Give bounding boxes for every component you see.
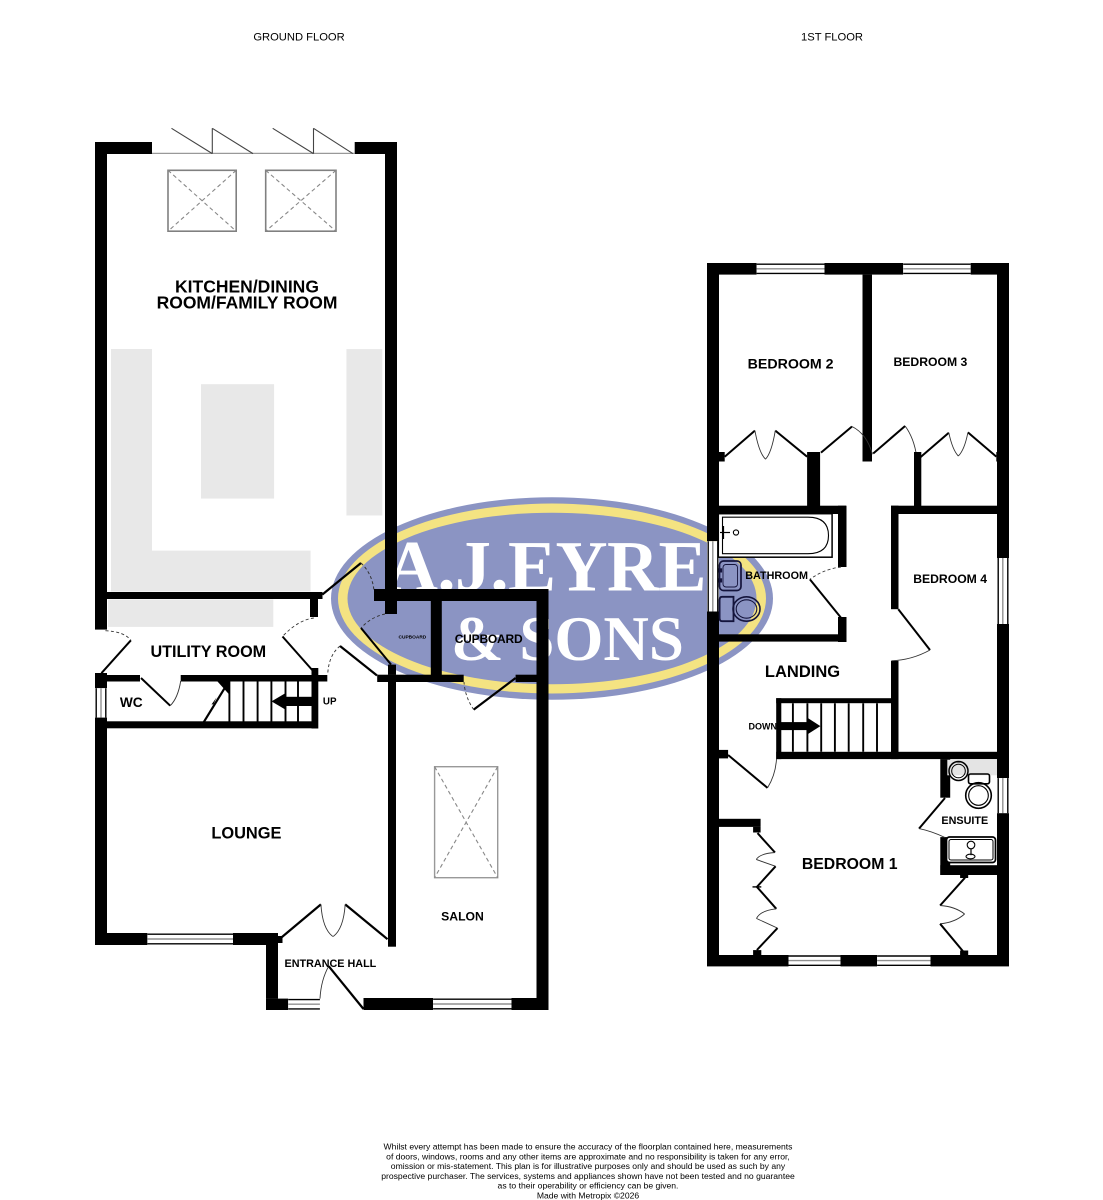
svg-text:omission or mis-statement. Thi: omission or mis-statement. This plan is … [391, 1161, 786, 1171]
svg-text:LANDING: LANDING [765, 663, 840, 681]
svg-text:UTILITY ROOM: UTILITY ROOM [150, 643, 266, 661]
svg-text:Made with Metropix ©2026: Made with Metropix ©2026 [537, 1191, 640, 1200]
svg-text:LOUNGE: LOUNGE [211, 824, 281, 842]
svg-text:WC: WC [120, 695, 143, 710]
svg-text:BEDROOM 4: BEDROOM 4 [913, 572, 987, 586]
svg-text:as to their operability or eff: as to their operability or efficiency ca… [498, 1181, 679, 1191]
svg-text:ROOM/FAMILY ROOM: ROOM/FAMILY ROOM [157, 292, 338, 312]
svg-text:1ST FLOOR: 1ST FLOOR [801, 32, 863, 44]
svg-text:CUPBOARD: CUPBOARD [399, 635, 427, 641]
svg-text:UP: UP [323, 697, 337, 708]
svg-text:Whilst every attempt has been: Whilst every attempt has been made to en… [384, 1142, 793, 1152]
svg-text:ENTRANCE HALL: ENTRANCE HALL [285, 958, 377, 970]
svg-text:ENSUITE: ENSUITE [941, 815, 988, 827]
svg-text:CUPBOARD: CUPBOARD [455, 632, 523, 646]
svg-text:GROUND FLOOR: GROUND FLOOR [253, 32, 344, 44]
svg-text:BEDROOM 1: BEDROOM 1 [802, 856, 898, 873]
svg-text:BEDROOM 2: BEDROOM 2 [748, 357, 834, 373]
svg-text:DOWN: DOWN [749, 722, 778, 732]
svg-text:SALON: SALON [441, 910, 484, 924]
svg-text:prospective purchaser. The ser: prospective purchaser. The services, sys… [381, 1171, 795, 1181]
svg-text:BATHROOM: BATHROOM [745, 570, 808, 582]
svg-text:BEDROOM 3: BEDROOM 3 [893, 355, 967, 369]
svg-text:of doors, windows, rooms and a: of doors, windows, rooms and any other i… [386, 1151, 790, 1161]
